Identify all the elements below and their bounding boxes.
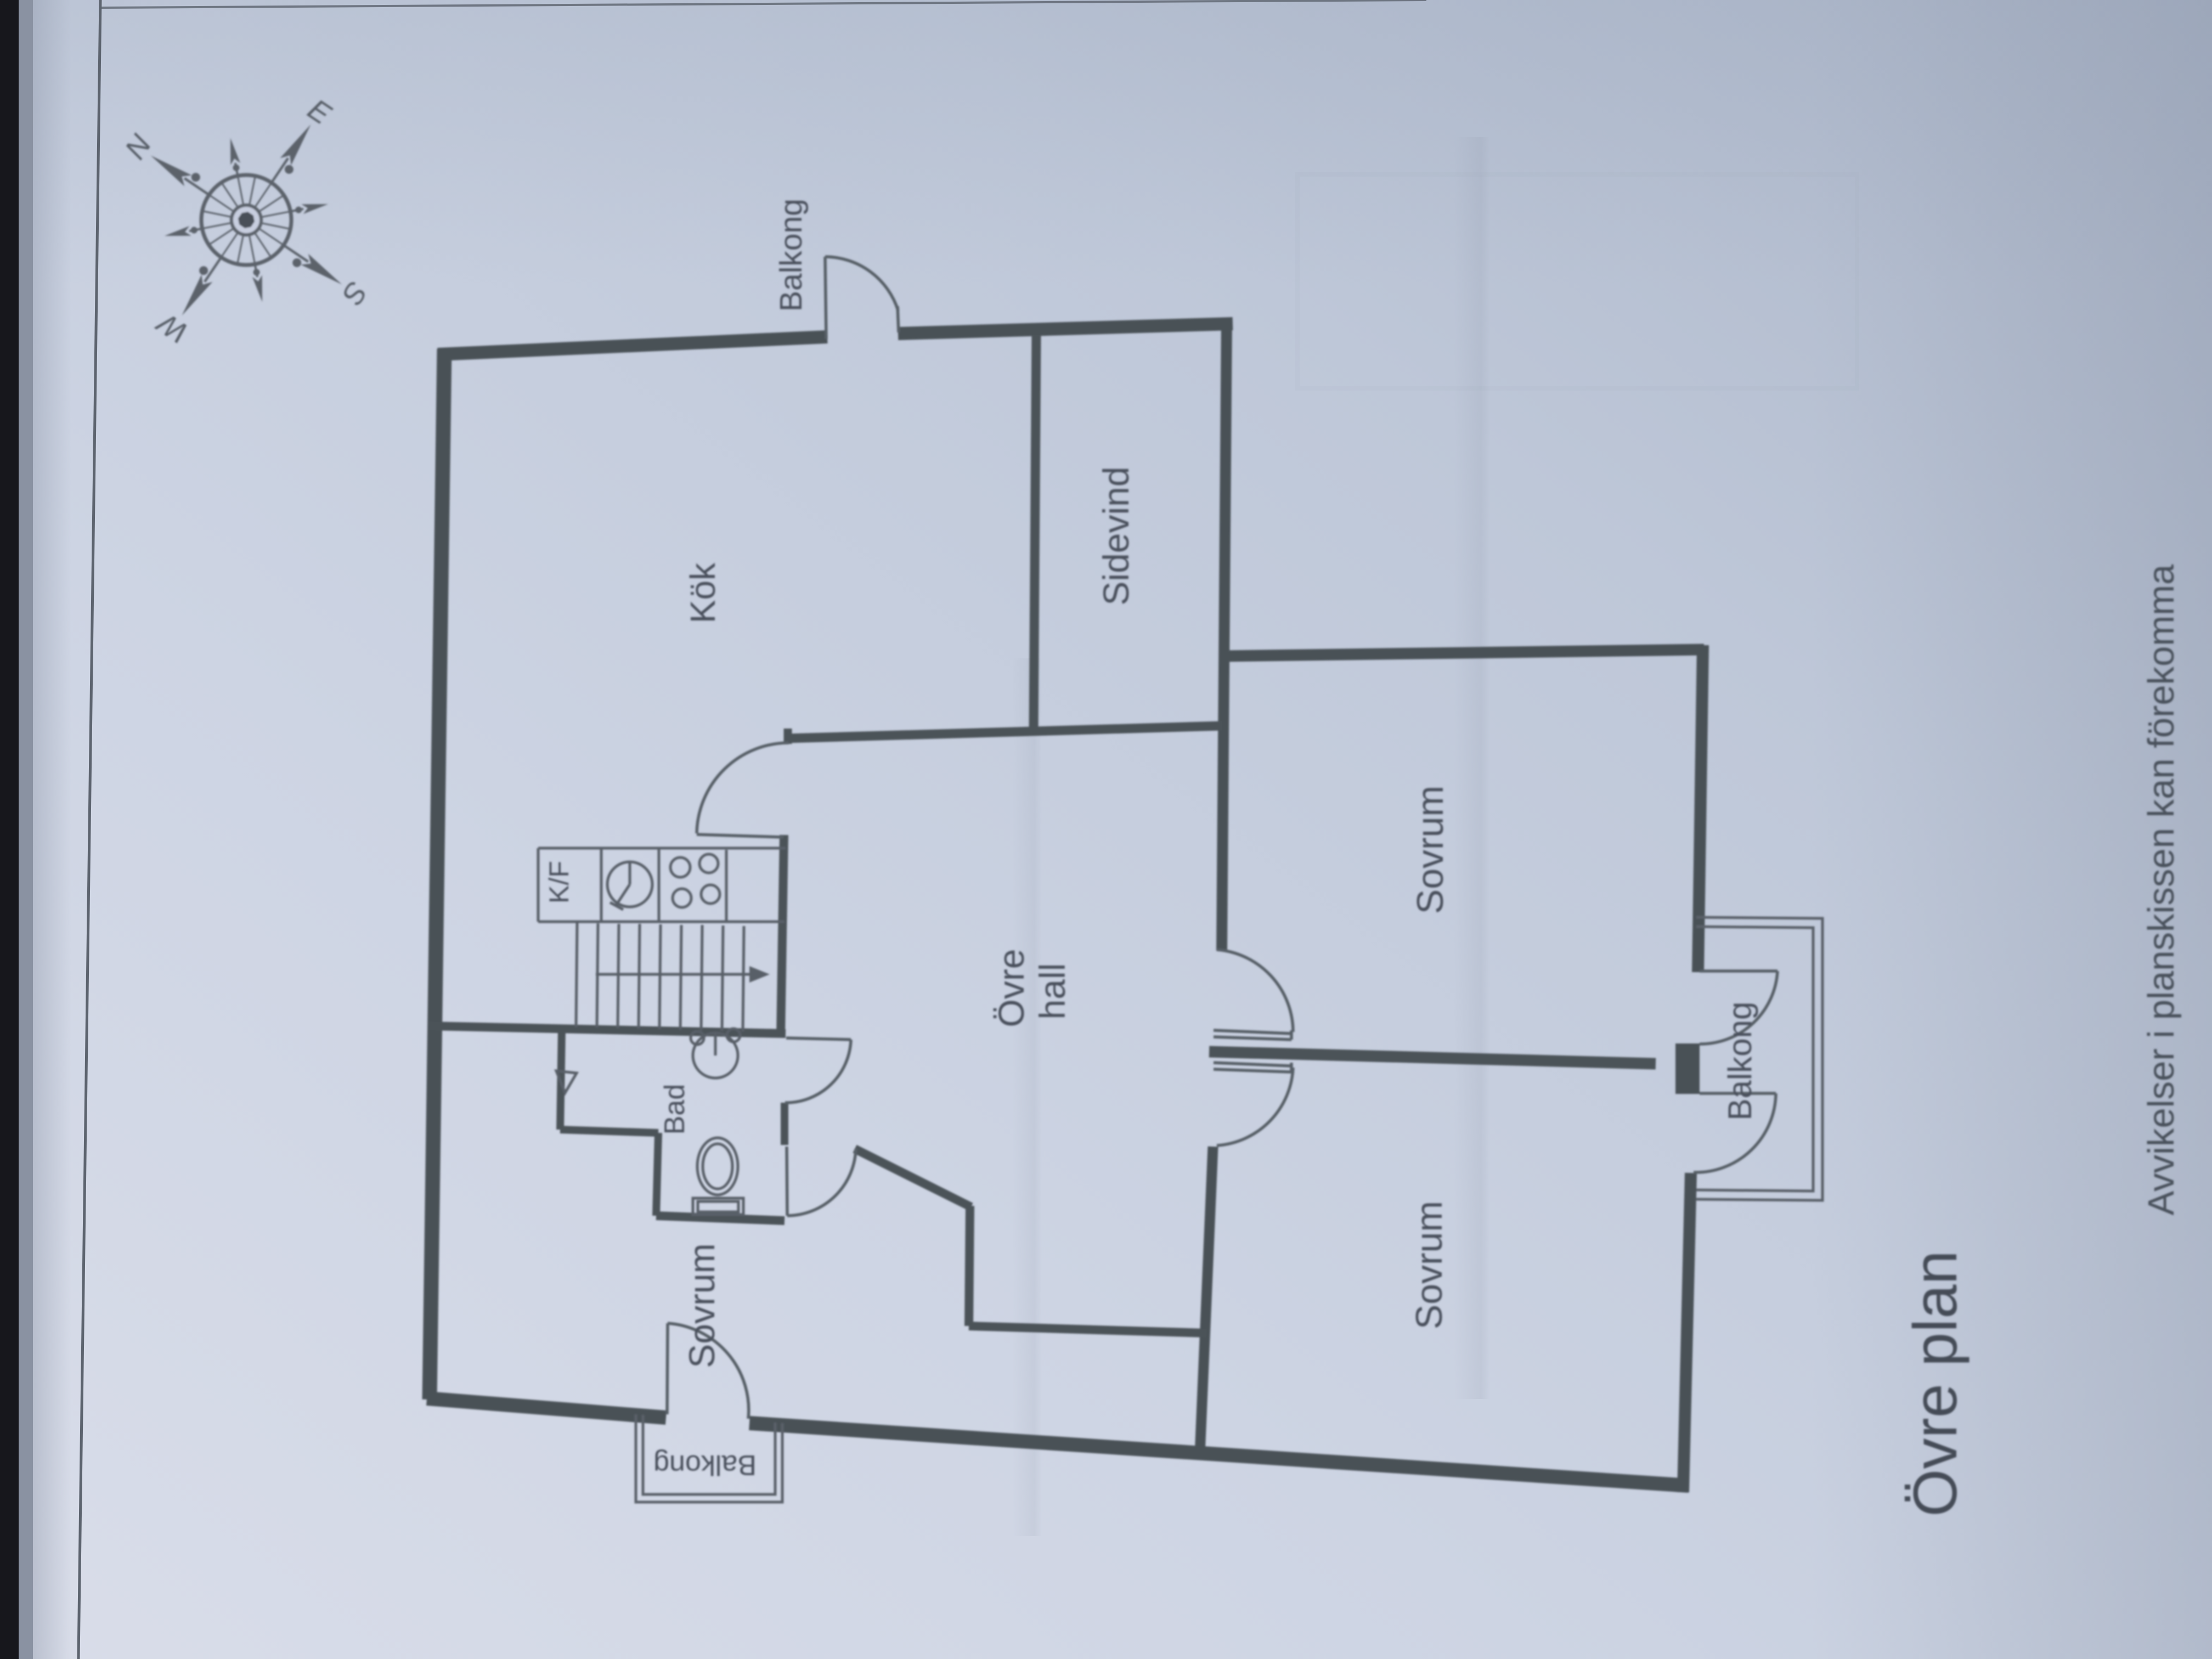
svg-text:Sovrum: Sovrum <box>681 1243 722 1368</box>
svg-text:Övre: Övre <box>991 949 1031 1027</box>
svg-text:K/F: K/F <box>544 861 574 904</box>
svg-text:Kök: Kök <box>683 562 723 623</box>
svg-text:Bad: Bad <box>659 1084 691 1135</box>
svg-text:Sovrum: Sovrum <box>1409 786 1451 914</box>
svg-text:Sidevind: Sidevind <box>1096 466 1136 605</box>
svg-text:Sovrum: Sovrum <box>1408 1201 1450 1329</box>
svg-text:Balkong: Balkong <box>1722 1002 1758 1121</box>
svg-text:Övre plan: Övre plan <box>1901 1250 1970 1517</box>
svg-text:hall: hall <box>1032 963 1073 1020</box>
svg-text:Avvikelser i planskissen kan f: Avvikelser i planskissen kan förekomma <box>2141 564 2182 1215</box>
svg-text:Balkong: Balkong <box>653 1449 757 1481</box>
svg-text:Balkong: Balkong <box>774 199 809 312</box>
